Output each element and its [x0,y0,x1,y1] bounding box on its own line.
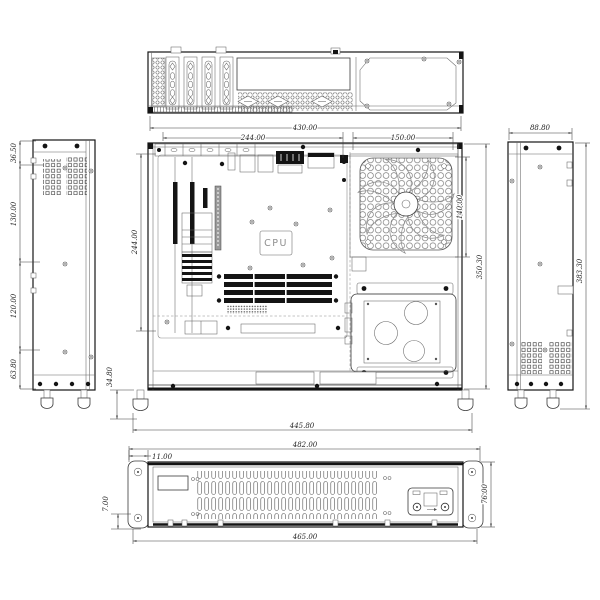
svg-text:350.30: 350.30 [476,254,484,279]
front-vent-grille [197,471,379,519]
dim-main-height-total: 350.30 [464,144,490,389]
svg-text:7.00: 7.00 [102,496,110,512]
svg-text:34.80: 34.80 [106,366,114,387]
dim-main-width-total: 430.00 [150,116,461,132]
chassis-foot [515,390,527,409]
view-front-panel [128,461,483,528]
dim-main-board-height: 244.00 [131,154,156,331]
rear-side-vent-grid [152,58,165,106]
side-notch [558,286,573,294]
view-top-rear-panel [148,47,463,113]
chassis-tab [216,47,226,53]
dim-right-width: 88.80 [509,124,572,140]
dim-left-seg3: 120.00 [10,293,18,318]
dim-left-seg2: 130.00 [10,201,18,226]
psu-cutout-panel [360,58,456,110]
chassis-foot [78,390,90,409]
dim-left-seg4: 63.80 [10,358,18,379]
dim-left-chain: 36.50 130.00 120.00 63.80 [10,141,44,389]
svg-text:140.00: 140.00 [456,194,464,219]
dim-front-feet-span: 445.80 [133,413,472,433]
view-right-side [508,142,573,409]
svg-text:76.00: 76.00 [481,483,489,504]
svg-text:430.00: 430.00 [292,124,318,132]
cpu-label: CPU [264,238,288,249]
dim-main-width-right: 150.00 [353,132,453,150]
dim-left-seg1: 36.50 [10,142,18,163]
power-supply [345,283,456,378]
drawing-svg: CPU [0,0,600,600]
heatsink [182,213,212,296]
svg-text:11.00: 11.00 [152,453,173,461]
chassis-foot [547,390,559,409]
chassis-technical-drawing: CPU [0,0,600,600]
side-vent-grid [66,156,87,195]
front-panel-header [227,305,267,314]
view-left-side [31,140,95,409]
dim-main-foot-height: 34.80 [106,366,137,419]
side-vent-grid [43,159,62,195]
rear-io-ports [228,151,348,173]
expansion-slot-brackets [166,57,233,109]
view-main-internal: CPU [133,143,473,411]
front-wall [148,371,462,389]
chassis-foot [41,390,53,409]
dim-front-width-bottom: 465.00 [133,529,477,544]
side-vent-grid [520,341,542,374]
dim-front-width-top: 482.00 [129,441,480,462]
svg-text:244.00: 244.00 [240,134,266,142]
dim-front-flange-height: 7.00 [102,496,141,529]
expansion-slots [173,157,221,333]
svg-text:445.80: 445.80 [289,422,315,430]
dim-front-ear-offset: 11.00 [129,450,173,461]
svg-text:383.30: 383.30 [576,258,584,283]
motherboard: CPU [153,151,348,338]
cpu-socket: CPU [260,231,292,255]
edge-connector [241,324,315,333]
svg-text:244.00: 244.00 [131,229,139,255]
io-shield-opening [237,58,350,90]
svg-text:150.00: 150.00 [391,134,416,142]
svg-text:482.00: 482.00 [292,441,318,449]
svg-text:88.80: 88.80 [530,124,551,132]
system-fan [342,154,458,271]
chassis-foot [458,390,473,411]
side-vent-grid [549,341,572,374]
chassis-tab [171,47,181,53]
ram-slots [217,273,338,304]
chassis-foot [133,390,148,411]
svg-text:465.00: 465.00 [292,533,318,541]
